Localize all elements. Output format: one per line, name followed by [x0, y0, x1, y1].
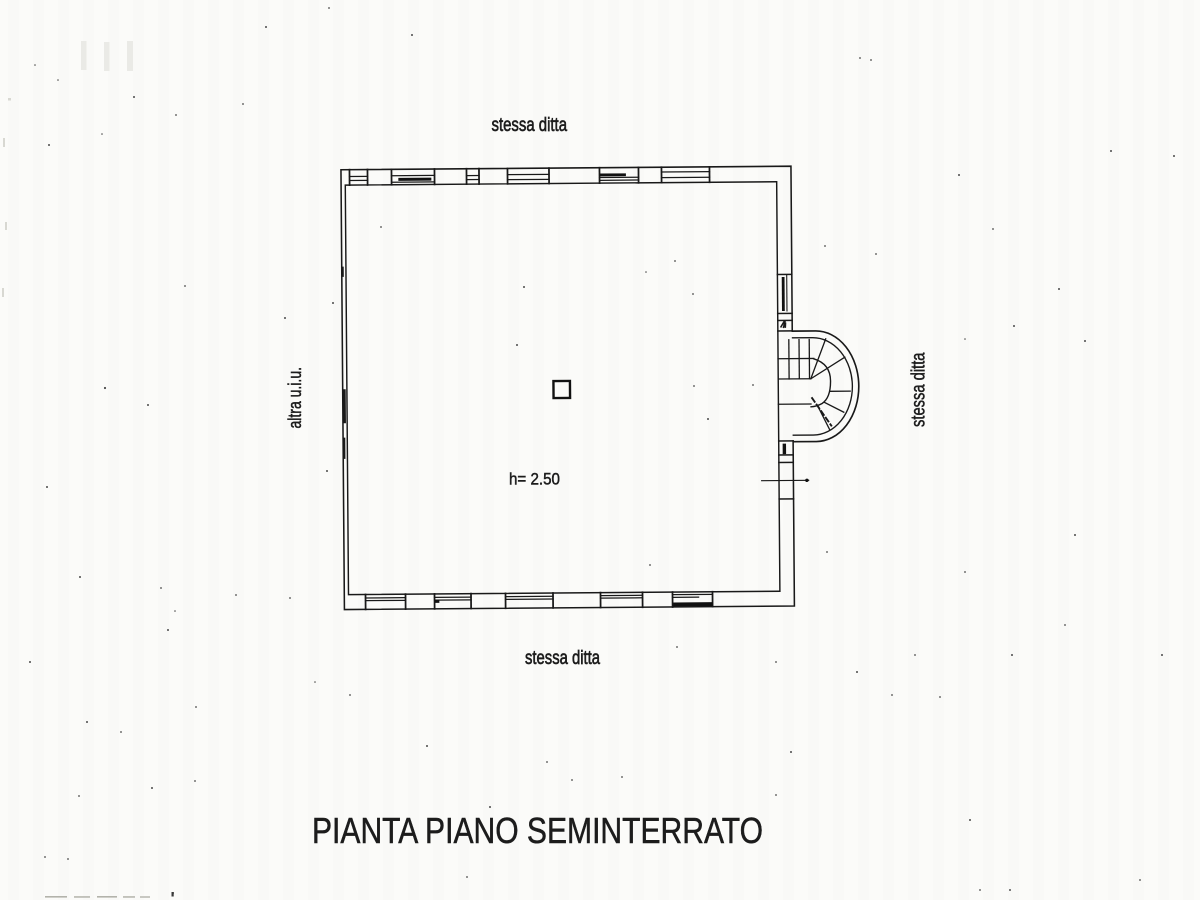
svg-text:stessa ditta: stessa ditta — [492, 114, 568, 136]
svg-text:stessa ditta: stessa ditta — [909, 352, 930, 427]
svg-text:stessa ditta: stessa ditta — [525, 647, 600, 669]
svg-text:PIANTA PIANO SEMINTERRATO: PIANTA PIANO SEMINTERRATO — [312, 810, 763, 851]
svg-text:h= 2.50: h= 2.50 — [509, 470, 560, 489]
svg-text:altra u.i.u.: altra u.i.u. — [285, 367, 305, 429]
